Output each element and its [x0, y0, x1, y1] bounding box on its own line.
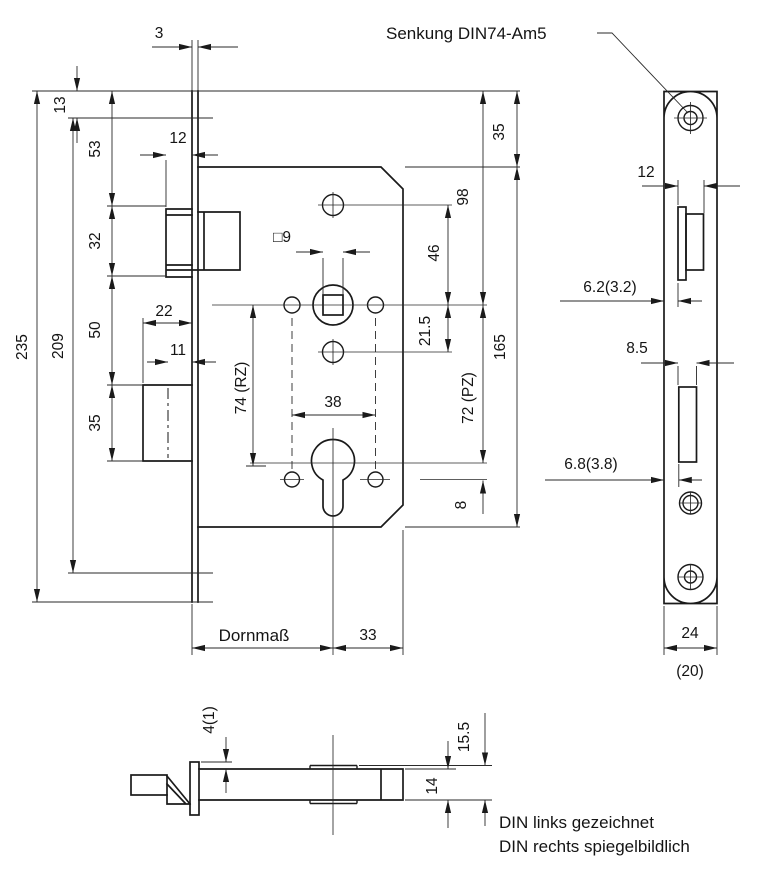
dim-hub-screw-spacing: 38 [324, 394, 341, 411]
latch-front-lip [678, 207, 686, 280]
dim-cyl-to-screws: 8 [453, 501, 470, 510]
dim-latch-height: 32 [87, 232, 104, 249]
bottom-view [131, 762, 403, 815]
dim-rz-distance: 74 (RZ) [233, 362, 250, 415]
dim-backset-label: Dornmaß [219, 626, 290, 645]
dim-plate-length: 235 [14, 334, 31, 360]
dim-bolt-throw: 11 [170, 342, 186, 359]
dim-plate-to-spindle: 98 [455, 188, 472, 205]
labels: 3 Senkung DIN74-Am5 13 53 32 50 35 235 2… [14, 24, 704, 856]
case-bottom-view [199, 769, 403, 800]
faceplate-front-view [664, 92, 717, 604]
faceplate-edge-lines [192, 91, 198, 602]
note-din-right: DIN rechts spiegelbildlich [499, 837, 690, 856]
dim-case-height: 165 [492, 334, 509, 360]
faceplate-bottom-view [190, 762, 199, 815]
dim-front-bolt-width: 8.5 [626, 340, 648, 357]
dim-plate-thickness: 3 [155, 25, 164, 42]
latch-front-body [686, 214, 704, 270]
centerlines [168, 102, 707, 835]
dim-spindle-square: □9 [273, 229, 291, 246]
lock-technical-drawing: 3 Senkung DIN74-Am5 13 53 32 50 35 235 2… [0, 0, 759, 879]
latch-tip-rect [131, 775, 167, 795]
dim-bottom-plate-lip: 4(1) [201, 706, 218, 734]
dim-front-latch-offset: 6.2(3.2) [583, 279, 636, 296]
dim-hole-spacing: 209 [50, 333, 67, 359]
countersink-callout: Senkung DIN74-Am5 [386, 24, 547, 43]
dim-latch-protrusion: 12 [169, 130, 186, 147]
dim-hole-edge-offset: 13 [52, 96, 69, 113]
cover-bumps [310, 766, 357, 804]
extension-lines [32, 33, 717, 800]
dim-front-bolt-offset: 6.8(3.8) [564, 456, 617, 473]
dim-plate-to-latch: 53 [87, 140, 104, 157]
dim-spindle-to-lower-hole: 21.5 [417, 316, 434, 346]
note-din-left: DIN links gezeichnet [499, 813, 654, 832]
lock-technical-drawing-page: 3 Senkung DIN74-Am5 13 53 32 50 35 235 2… [0, 0, 759, 879]
dim-front-plate-width: 24 [681, 625, 699, 642]
latch-bevel [167, 776, 190, 804]
dim-front-latch-width: 12 [637, 164, 654, 181]
latch-bolt-side [166, 209, 240, 277]
dim-bottom-case-depth: 14 [424, 777, 441, 795]
dim-plate-to-case: 35 [491, 123, 508, 140]
dim-bolt-height: 35 [87, 414, 104, 431]
faceplate-front-outline [664, 92, 717, 604]
dim-latch-to-bolt: 50 [87, 321, 104, 339]
dim-spindle-to-top-hole: 46 [426, 244, 443, 261]
dim-cyl-to-case-edge: 33 [359, 627, 376, 644]
dim-pz-distance: 72 (PZ) [460, 372, 477, 424]
deadbolt-front-slot [679, 387, 697, 462]
callout-leader [597, 33, 688, 113]
dim-bottom-overall-depth: 15.5 [456, 722, 473, 752]
dim-bolt-head-width: 22 [155, 303, 172, 320]
dim-front-plate-width-alt: (20) [676, 663, 704, 680]
